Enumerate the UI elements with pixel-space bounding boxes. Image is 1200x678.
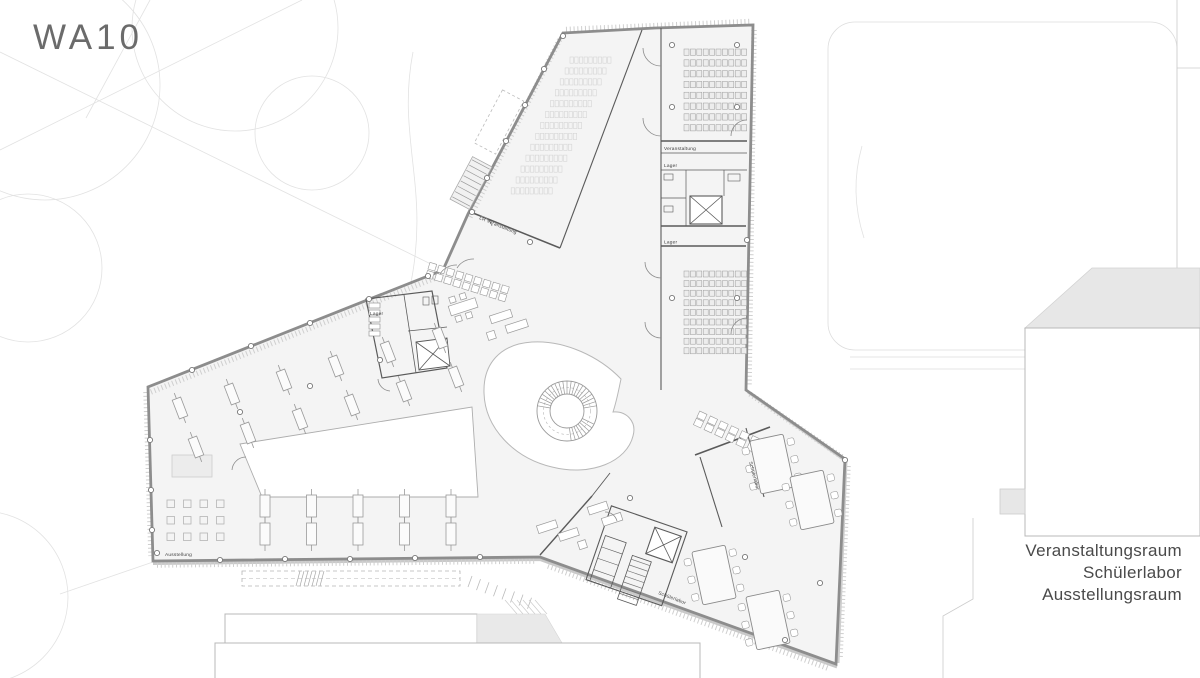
south-building-wing: [477, 614, 562, 643]
drawing-title: WA10: [33, 18, 143, 58]
site-line: [60, 562, 153, 594]
road-edge: [943, 518, 973, 678]
neighbor-building: [1025, 328, 1200, 536]
tree-outline: [132, 0, 338, 131]
tree-outline: [0, 511, 68, 678]
site-line: [0, 52, 443, 270]
room-label-veranstaltung: Veranstaltung: [664, 146, 696, 152]
room-label-lager-mid: Lager: [664, 240, 677, 246]
south-building-lower: [215, 643, 700, 678]
neighbor-building-roof: [1025, 268, 1200, 328]
site-curve: [408, 52, 417, 292]
drawing-sheet: Veranstaltung Lager Lager Lager LR Veran…: [0, 0, 1200, 678]
floor-plan: Veranstaltung Lager Lager Lager LR Veran…: [0, 0, 1200, 678]
legend-line-schuelerlabor: Schülerlabor: [1025, 562, 1182, 584]
room-legend: Veranstaltungsraum Schülerlabor Ausstell…: [1025, 540, 1182, 606]
room-label-ausstellung: Ausstellung: [165, 552, 192, 558]
room-label-lager-top: Lager: [664, 163, 677, 169]
south-ramp: [242, 571, 460, 586]
tree-outline: [255, 76, 369, 190]
storage-shelves: [369, 303, 380, 336]
legend-line-ausstellungsraum: Ausstellungsraum: [1025, 584, 1182, 606]
south-building: [225, 614, 477, 643]
neighbor-annex: [1000, 489, 1025, 514]
site-curve: [856, 146, 864, 238]
exhibit-platform: [172, 455, 212, 477]
legend-line-veranstaltungsraum: Veranstaltungsraum: [1025, 540, 1182, 562]
tree-outline: [0, 194, 102, 342]
exterior-stair-ticks: [296, 571, 547, 614]
room-label-lager-core: Lager: [370, 311, 383, 317]
